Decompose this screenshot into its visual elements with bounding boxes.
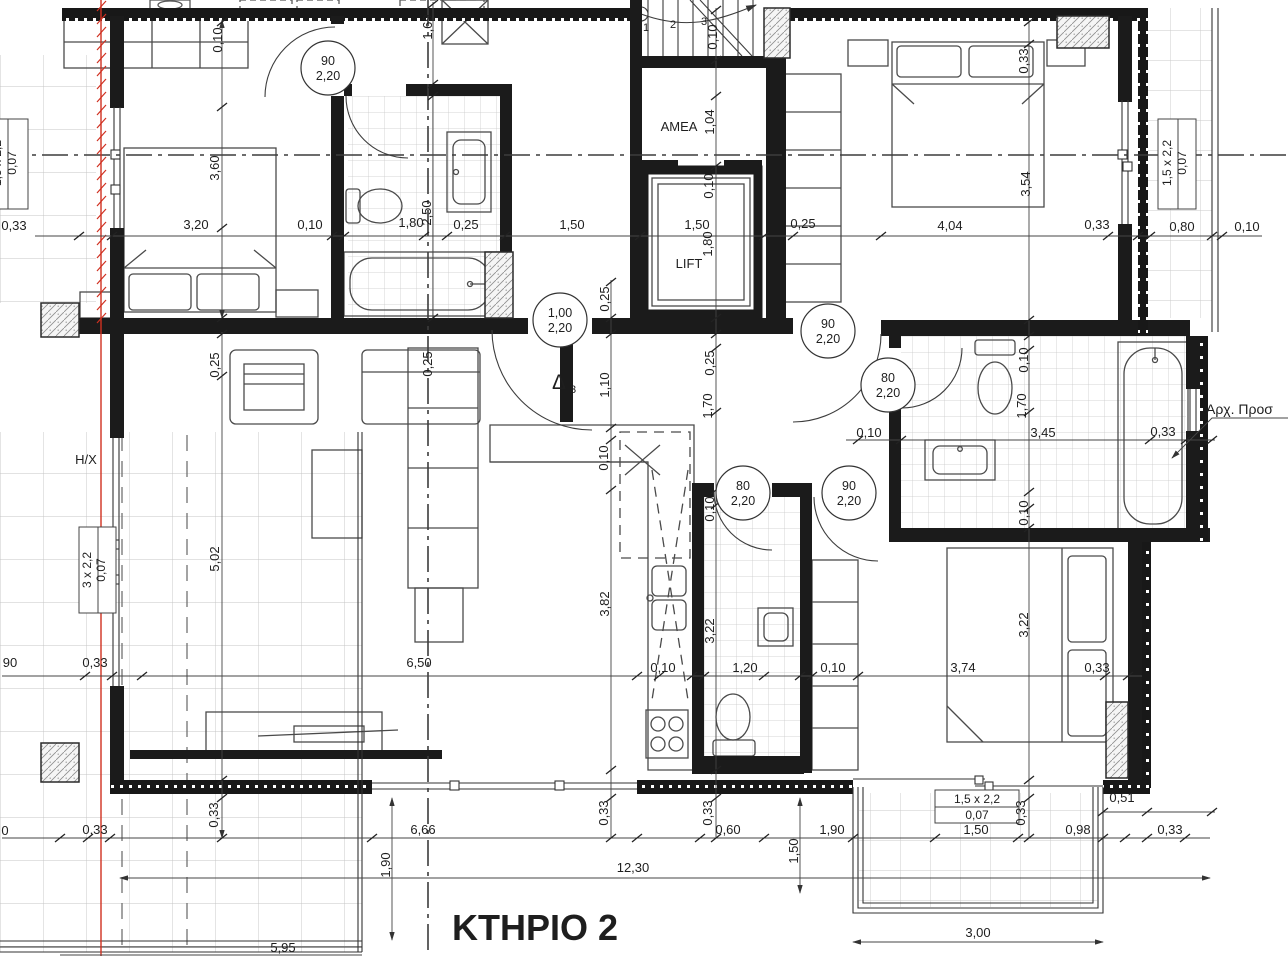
- window-tag-area: 0,07: [1175, 151, 1189, 175]
- door-tag-width: 1,00: [548, 306, 572, 320]
- dimension-label: 0,51: [1109, 790, 1134, 805]
- terrace-tiles: [0, 432, 362, 952]
- dimension-label: 0,33: [596, 800, 611, 825]
- building-title: ΚΤΗΡΙΟ 2: [452, 907, 618, 948]
- wall-hatch: [764, 8, 790, 58]
- dimension-label: 3,74: [950, 660, 975, 675]
- dimension-label: 1,04: [702, 109, 717, 134]
- dimension-label: 0,33: [206, 802, 221, 827]
- armchair: [230, 350, 318, 424]
- nightstand: [276, 290, 318, 317]
- door-tag-circle: [301, 41, 355, 95]
- dimension-label: 3,82: [597, 591, 612, 616]
- dimension-label: 0,33: [1016, 48, 1031, 73]
- door-tag-height: 2,20: [837, 494, 861, 508]
- exterior-wall-top: [62, 8, 635, 21]
- room-label-amea: AMEA: [661, 119, 698, 134]
- arch-note: Αρχ. Προσ: [1206, 401, 1273, 417]
- dimension-label: 0,25: [453, 217, 478, 232]
- dimension-label: 1,70: [1014, 393, 1029, 418]
- balcony-right-rail: [1212, 8, 1218, 332]
- door-tag-height: 2,20: [316, 69, 340, 83]
- column: [1106, 702, 1128, 778]
- dimension-label: 12,30: [617, 860, 650, 875]
- dimension-label: 1,50: [963, 822, 988, 837]
- dimension-label: 3,22: [1016, 612, 1031, 637]
- dimension-label: 0,10: [596, 445, 611, 470]
- kitchen-counter: [490, 425, 694, 770]
- dimension-label: 90: [3, 655, 17, 670]
- door-delta-sub: 3: [570, 384, 576, 396]
- dimension-label: 0,10: [210, 27, 225, 52]
- column: [41, 303, 79, 337]
- dimension-label: 0,33: [1157, 822, 1182, 837]
- floor-plan-canvas: 0,333,200,101,802,500,251,501,500,254,04…: [0, 0, 1288, 956]
- dimension-label: 0,33: [82, 655, 107, 670]
- dimension-label: 0,10: [702, 496, 717, 521]
- dimension-label: 0,10: [1234, 219, 1259, 234]
- dimension-label: 0,33: [1150, 424, 1175, 439]
- dimension-label: 0,33: [1084, 217, 1109, 232]
- sliding-door-bedroom-2: [1118, 100, 1132, 224]
- dimension-label: 3,22: [702, 618, 717, 643]
- dimension-label: 1,70: [700, 393, 715, 418]
- window-tag-size: 1,5 x 2,2: [1160, 140, 1174, 186]
- dimension-label: 1,50: [559, 217, 584, 232]
- window-tag-area: 0,07: [5, 151, 19, 175]
- window-tag-area: 0,07: [965, 808, 989, 822]
- dimension-label: 0,25: [420, 351, 435, 376]
- dimension-label: 0: [1, 823, 8, 838]
- door-tag-width: 80: [736, 479, 750, 493]
- window-living-south: [372, 781, 637, 790]
- dimension-label: 0,10: [297, 217, 322, 232]
- dimension-label: 3,54: [1018, 171, 1033, 196]
- door-tag-width: 90: [321, 54, 335, 68]
- stair-number: 3: [701, 16, 707, 28]
- dimension-label: 0,33: [1, 218, 26, 233]
- dimension-label: 1,20: [732, 660, 757, 675]
- dimension-label: 0,25: [207, 352, 222, 377]
- door-tag-height: 2,20: [731, 494, 755, 508]
- door-delta-label: Δ: [552, 371, 566, 394]
- dimension-label: 3,00: [965, 925, 990, 940]
- door-tag-circle: [716, 466, 770, 520]
- dimension-label: 0,25: [790, 216, 815, 231]
- wall-hatch: [485, 252, 513, 318]
- stair-number: 1: [643, 22, 649, 34]
- dimension-label: 1,50: [786, 838, 801, 863]
- dimension-label: 2,50: [419, 200, 434, 225]
- window-bedroom-1: [111, 107, 120, 228]
- dimension-label: 1,90: [819, 822, 844, 837]
- dimension-label: 0,33: [1084, 660, 1109, 675]
- sofa: [408, 348, 478, 642]
- dimension-label: 0,10: [650, 660, 675, 675]
- nightstand: [848, 40, 888, 66]
- window-tag-size: 1,5 x 2,2: [954, 792, 1000, 806]
- door-tag-circle: [533, 293, 587, 347]
- door-tag-circle: [801, 304, 855, 358]
- door-tag-height: 2,20: [548, 321, 572, 335]
- door-tag-height: 2,20: [876, 386, 900, 400]
- wc-tiles: [704, 497, 800, 756]
- dimension-label: 0,10: [1016, 347, 1031, 372]
- dimension-label: 1,80: [700, 231, 715, 256]
- kitchen-sink: [647, 566, 686, 630]
- stair-number: 2: [670, 19, 676, 31]
- door-tag-width: 90: [821, 317, 835, 331]
- dimension-label: 0,33: [700, 800, 715, 825]
- dimension-label: 1,10: [597, 372, 612, 397]
- dimension-label: 0,10: [705, 24, 720, 49]
- dimension-label: 0,10: [1016, 500, 1031, 525]
- dimension-label: 0,98: [1065, 822, 1090, 837]
- dimension-label: 0,10: [856, 425, 881, 440]
- dimension-label: 0,10: [701, 173, 716, 198]
- dimension-label: 1,90: [378, 852, 393, 877]
- ottoman: [415, 588, 463, 642]
- room-label-lift: LIFT: [676, 256, 703, 271]
- dimension-label: 0,25: [702, 350, 717, 375]
- window-tag-size: 1,5 x 2,2: [0, 140, 4, 186]
- stairs: [634, 0, 756, 56]
- wall-hatch: [1057, 16, 1109, 48]
- window-tag-size: 3 x 2,2: [80, 552, 94, 588]
- cabinet-x-mark: [625, 445, 660, 475]
- dimension-label: 4,04: [937, 218, 962, 233]
- dimension-label: 0,10: [820, 660, 845, 675]
- dimension-label: 3,45: [1030, 425, 1055, 440]
- dimension-label: 5,02: [207, 546, 222, 571]
- window-tag-area: 0,07: [94, 558, 108, 582]
- duct-shaft: [442, 0, 488, 44]
- window-bathroom-2: [1190, 389, 1196, 431]
- sliding-door-bedroom-3: [853, 776, 1103, 790]
- cooktop: [646, 710, 688, 758]
- door-arc-living: [492, 330, 592, 430]
- dimension-label: 3,20: [183, 217, 208, 232]
- door-tag-circle: [822, 466, 876, 520]
- dimension-label: 3,60: [207, 155, 222, 180]
- door-tag-width: 80: [881, 371, 895, 385]
- bed-3: [947, 548, 1113, 742]
- wardrobe-bedroom-2: [785, 74, 841, 302]
- door-tag-width: 90: [842, 479, 856, 493]
- room-label-hx: H/X: [75, 452, 97, 467]
- door-tag-height: 2,20: [816, 332, 840, 346]
- dimension-label: 5,95: [270, 940, 295, 955]
- dimension-label: 1,50: [684, 217, 709, 232]
- dimension-label: 0,33: [82, 822, 107, 837]
- column: [41, 743, 79, 782]
- dimension-label: 6,66: [410, 822, 435, 837]
- dimension-label: 0,33: [1013, 800, 1028, 825]
- dimension-label: 0,80: [1169, 219, 1194, 234]
- dimension-label: 1,69: [420, 14, 435, 39]
- floor-plan-drawing: 0,333,200,101,802,500,251,501,500,254,04…: [0, 0, 1288, 956]
- dimension-label: 6,50: [406, 655, 431, 670]
- door-tag-circle: [861, 358, 915, 412]
- dimension-label: 0,60: [715, 822, 740, 837]
- dimension-label: 0,25: [597, 286, 612, 311]
